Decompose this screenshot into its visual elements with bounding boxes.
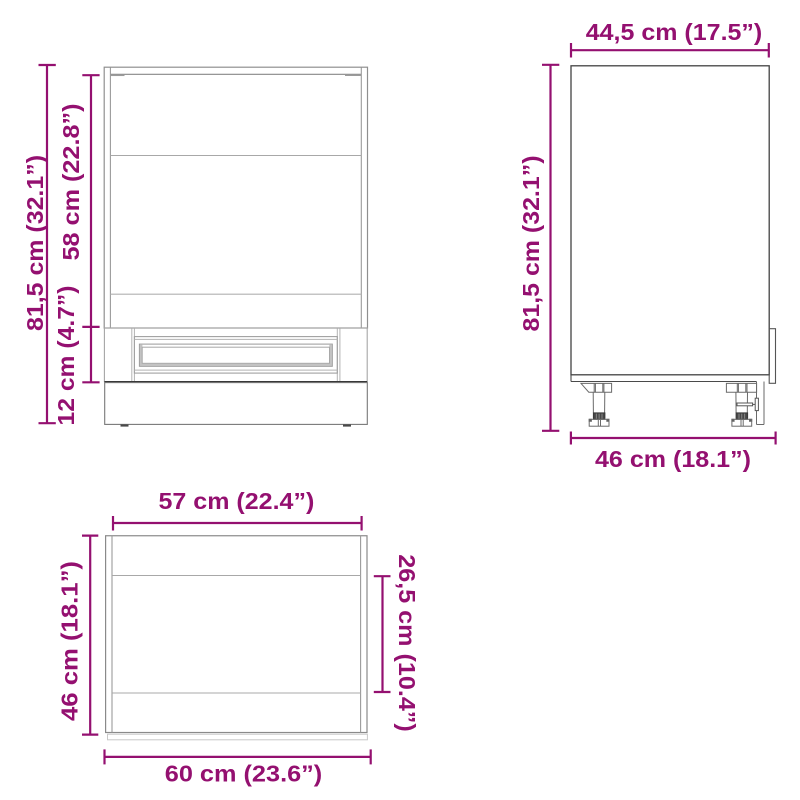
- svg-text:26,5 cm (10.4”): 26,5 cm (10.4”): [394, 554, 420, 732]
- svg-text:81,5 cm (32.1”): 81,5 cm (32.1”): [22, 155, 48, 331]
- svg-text:57 cm (22.4”): 57 cm (22.4”): [159, 488, 315, 514]
- svg-text:58 cm (22.8”): 58 cm (22.8”): [58, 104, 84, 261]
- svg-text:12 cm (4.7”): 12 cm (4.7”): [53, 286, 79, 426]
- svg-text:60 cm (23.6”): 60 cm (23.6”): [165, 761, 323, 787]
- svg-text:81,5 cm (32.1”): 81,5 cm (32.1”): [518, 156, 544, 332]
- svg-text:46 cm (18.1”): 46 cm (18.1”): [595, 446, 751, 472]
- svg-text:44,5 cm (17.5”): 44,5 cm (17.5”): [586, 19, 763, 45]
- svg-text:46 cm (18.1”): 46 cm (18.1”): [57, 561, 83, 721]
